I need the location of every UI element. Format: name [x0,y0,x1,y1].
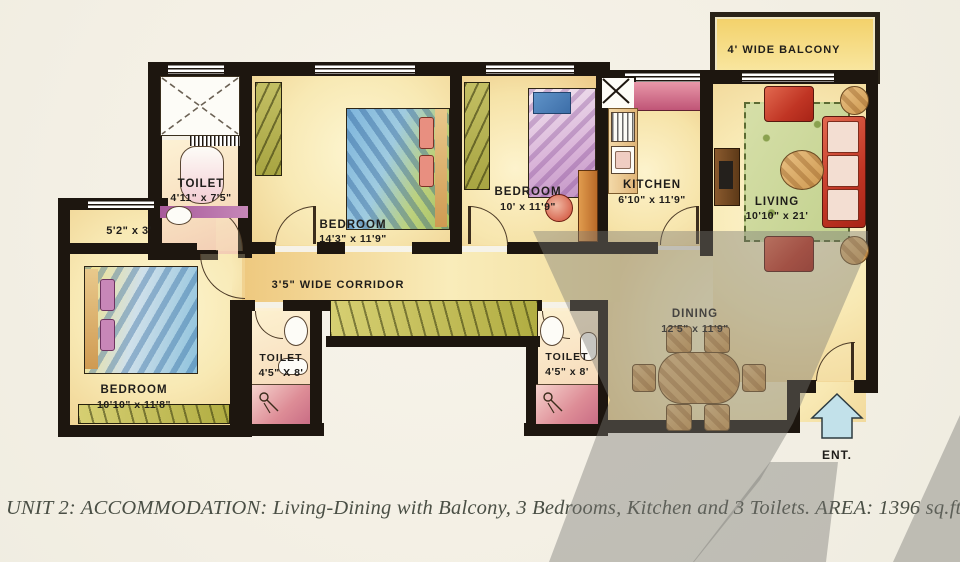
bed-top-pillow [533,92,571,114]
shower-zone-right [536,384,598,424]
dining-label: DINING [672,308,718,320]
wall-corridor-north-1 [240,242,275,254]
toilet-top-dims: 4'11" x 7'5" [170,192,231,204]
sink-icon [611,146,635,174]
wall-toilet-left-east [310,300,322,436]
entry-arrow-icon [806,392,868,446]
tv-screen [719,161,733,189]
stove-icon [611,112,635,142]
balcony-label: 4' WIDE BALCONY [728,44,841,56]
passage-dims: 5'2" x 3' [106,225,152,237]
window-passage [88,200,154,208]
living-label: LIVING [755,196,799,208]
washbasin-left-icon [284,316,308,346]
wall-wing-bottom [58,425,244,437]
wall-shaft-east [238,62,252,258]
bed-left-headboard [85,269,98,369]
top-bedroom-label: BEDROOM [494,186,561,198]
window-top-bedroom [486,64,574,74]
bed-master-icon [346,108,450,230]
bed-master-pillow-1 [419,117,434,149]
shaft-cross-icon [161,77,239,135]
shaft-vent [190,136,240,146]
master-bedroom-label: BEDROOM [319,219,386,231]
toilet-left-dims: 4'5" X 8' [259,367,304,379]
wall-corridor-south-4 [570,300,600,311]
dining-chair-6 [704,404,730,431]
wall-planter-bottom [326,336,540,347]
wall-kitchen-living [700,70,713,256]
corridor-label: 3'5" WIDE CORRIDOR [272,279,405,291]
wall-corridor-south-2 [283,300,332,311]
wardrobe-master [255,82,282,176]
sofa-cushion-1 [827,121,859,153]
sofa-cushion-3 [827,189,859,221]
left-bedroom-dims: 10'10" x 11'8" [97,399,171,411]
top-bedroom-dims: 10' x 11'9" [500,201,556,213]
side-table-ne-icon [840,86,869,115]
dining-chair-5 [666,404,692,431]
planter-strip-south [330,300,538,340]
bed-master-pillow-2 [419,155,434,187]
sofa-cushion-2 [827,155,859,187]
armchair-top-icon [764,86,814,122]
sink-bowl [615,151,631,169]
floor-plan-page: 4' WIDE BALCONY LIVING 10'10" x 21' KITC… [0,0,960,562]
kitchen-dims: 6'10" x 11'9" [618,194,686,206]
wardrobe-top-bedroom [464,82,490,190]
wall-corridor-north-5 [608,242,658,254]
window-kitchen [625,72,703,82]
balcony-sliding-door [742,72,834,82]
wall-toilet-left-bottom [240,423,324,436]
wall-dining-bottom [598,420,800,433]
dresser-top-bedroom [578,170,598,242]
wall-bed1-bed2 [450,62,462,254]
wall-corridor-north-3 [412,242,462,254]
dining-dims: 12'5" x 11'9" [661,323,729,335]
bed-left-pillow-1 [100,279,115,311]
toilet-top-label: TOILET [178,178,225,190]
window-shaft [168,64,224,74]
duct-shaft [600,76,636,110]
caption-text: UNIT 2: ACCOMMODATION: Living-Dining wit… [6,497,956,520]
toilet-right-dims: 4'5" x 8' [545,366,589,378]
toilet-right-label: TOILET [545,351,588,363]
entrance-label: ENT. [822,448,852,462]
dining-table-icon [658,352,740,404]
left-bedroom-label: BEDROOM [100,384,167,396]
wall-toilet-right-bottom [524,423,608,436]
toilet-left-label: TOILET [259,352,302,364]
door-leaf-master-bedroom [313,206,316,244]
shower-zone-left [252,384,310,424]
door-leaf-top-bedroom [468,206,471,244]
sofa-icon [822,116,866,228]
wall-wing-west [58,198,70,437]
dining-chair-4 [742,364,766,392]
bed-master-headboard [435,109,447,227]
washbasin-right-icon [540,316,564,346]
wall-entrance-step [787,380,800,433]
side-table-se-icon [840,236,869,265]
wall-toilet-right-east [598,300,608,433]
window-master-bedroom [315,64,415,74]
wall-wing-east [230,300,252,437]
kitchen-counter-top [634,82,700,111]
coffee-table-icon [780,150,824,190]
wall-corridor-north-4 [507,242,599,254]
door-leaf-kitchen [696,206,699,244]
kitchen-label: KITCHEN [623,179,681,191]
shower-icon-2 [540,391,570,417]
bed-left-icon [84,266,198,374]
armchair-bottom-icon [764,236,814,272]
door-leaf-entrance [851,342,854,380]
living-dims: 10'10" x 21' [746,210,809,222]
washbasin-top-icon [166,206,192,225]
bed-left-pillow-2 [100,319,115,351]
tv-unit-icon [714,148,740,206]
dining-chair-3 [632,364,656,392]
duct-cross-icon [602,78,630,104]
master-bedroom-dims: 14'3" x 11'9" [319,233,387,245]
corridor-floor [240,252,620,302]
wall-living-east [866,70,878,382]
wall-corridor-south-1 [240,300,255,311]
shower-icon [256,391,286,417]
lift-shaft [160,76,240,136]
watermark-band-right [893,415,960,562]
